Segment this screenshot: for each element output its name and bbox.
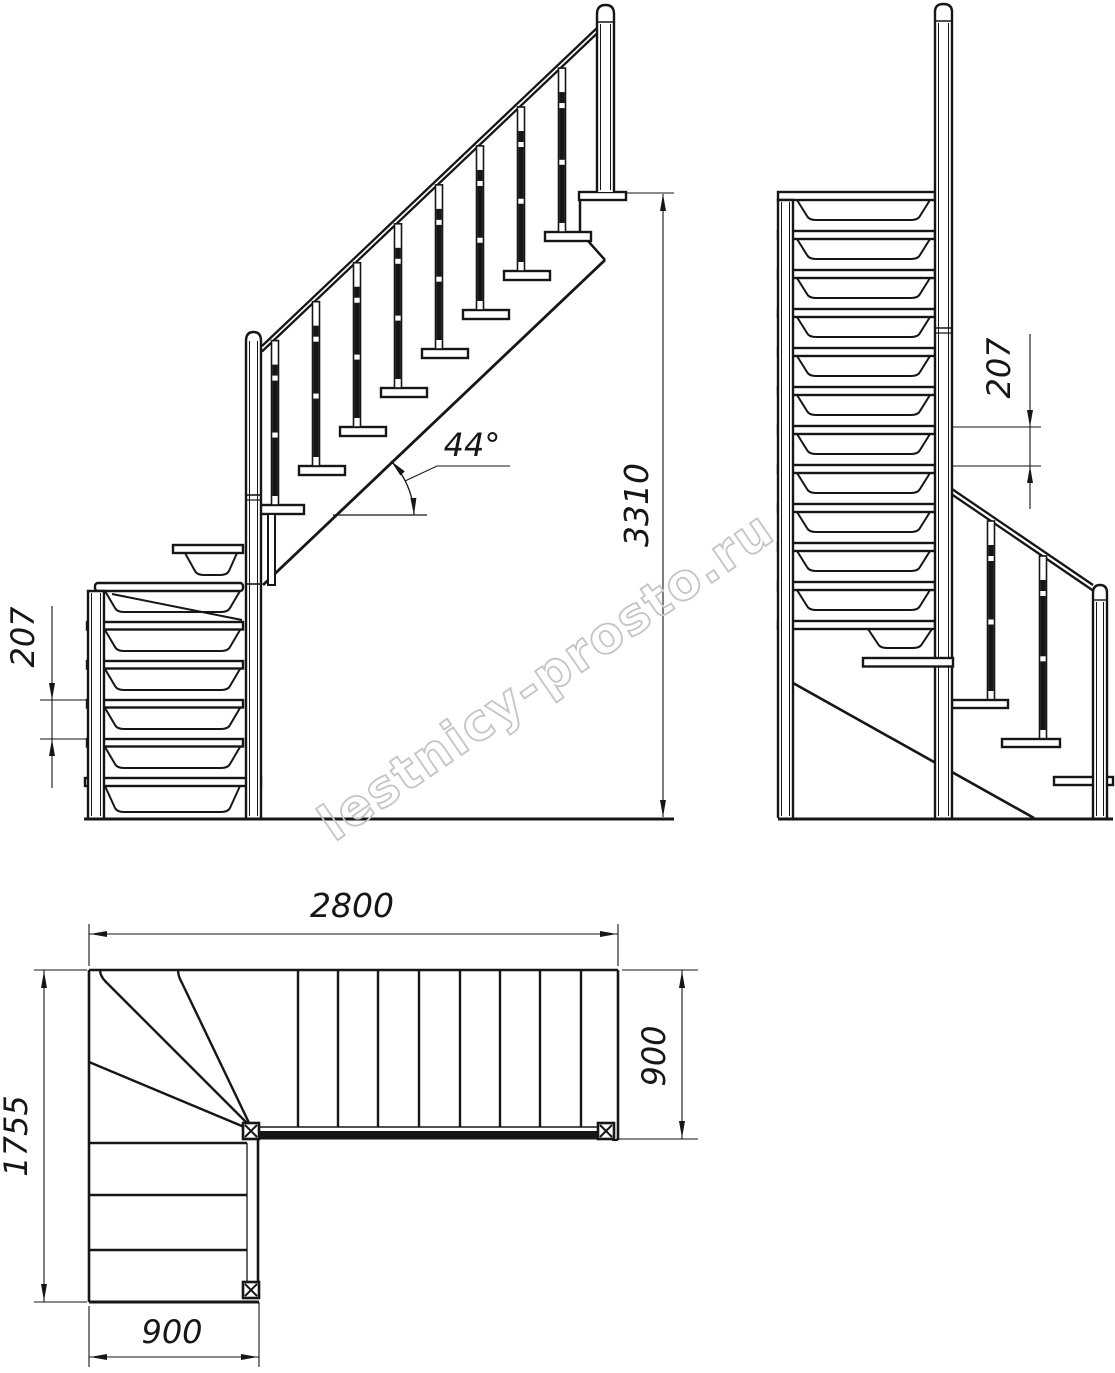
baluster	[559, 68, 566, 232]
tread	[463, 310, 509, 319]
tread	[778, 504, 935, 512]
lower-handrail-top-line	[952, 489, 1093, 585]
baluster-detail	[395, 321, 401, 379]
arrowhead	[410, 498, 417, 515]
tread-tray	[105, 747, 240, 768]
baluster-detail	[559, 92, 565, 103]
dim-riser-height-side: 207	[4, 606, 88, 788]
top-landing-tread	[579, 192, 626, 200]
tread	[381, 388, 427, 397]
arrowhead	[679, 971, 685, 988]
baluster-detail	[1040, 661, 1046, 730]
tread-tray	[105, 786, 240, 812]
tread	[778, 465, 935, 473]
handrail-top-line	[262, 27, 598, 346]
winder-tray-top	[185, 553, 237, 575]
baluster	[272, 341, 279, 505]
tread	[87, 622, 243, 630]
total-height-label: 3310	[617, 463, 656, 547]
baluster	[1040, 556, 1047, 739]
baluster-detail	[354, 303, 360, 355]
baluster	[354, 263, 361, 427]
arrowhead	[600, 931, 617, 937]
tread	[545, 232, 591, 241]
tread-tray	[797, 278, 930, 298]
angle-arc	[391, 461, 414, 515]
slope-angle-label: 44°	[444, 426, 501, 464]
tread	[95, 583, 243, 591]
baluster	[477, 146, 484, 310]
baluster-detail	[477, 186, 483, 238]
lower-tread-1	[952, 700, 1008, 708]
arrowhead	[90, 931, 107, 937]
baluster-detail	[313, 326, 319, 337]
newel-collar-tread	[863, 658, 953, 667]
tread	[778, 192, 935, 200]
tall-newel-post	[935, 4, 952, 818]
tread	[258, 505, 304, 514]
flight-width-label: 900	[635, 1025, 673, 1086]
center-newel-post	[246, 332, 261, 818]
plan-stringer-bar	[259, 1131, 598, 1140]
arrowhead	[241, 1354, 258, 1360]
baluster-detail	[518, 131, 524, 142]
upper-flight-balusters	[272, 68, 566, 505]
plan-newel-corner	[243, 1123, 259, 1139]
baluster-detail	[395, 248, 401, 259]
dim-total-height: 3310	[617, 193, 674, 817]
short-newel-post	[1093, 585, 1107, 818]
tread-tray	[797, 317, 930, 337]
tread	[778, 270, 935, 278]
baluster-detail	[436, 225, 442, 277]
front-elevation-view: 207	[778, 4, 1113, 819]
baluster-detail	[1040, 580, 1046, 591]
top-newel-post	[597, 5, 614, 192]
baluster-detail	[436, 282, 442, 340]
tread-tray	[797, 551, 930, 571]
tread-tray	[105, 708, 240, 729]
baluster-detail	[272, 365, 278, 376]
stack-left-post-front	[778, 200, 793, 818]
technical-drawing: 207 44° 3310	[0, 0, 1115, 1373]
baluster-detail	[272, 381, 278, 433]
step-support-post	[268, 514, 275, 585]
plan-newel-right	[598, 1123, 614, 1139]
arrowhead	[660, 194, 666, 211]
front-step-stack	[778, 192, 935, 648]
tread	[778, 582, 935, 590]
tread	[778, 309, 935, 317]
arrowhead	[41, 1284, 47, 1301]
winder-step-stack	[85, 583, 261, 812]
baluster	[988, 521, 995, 700]
total-run-label: 2800	[310, 886, 394, 925]
baluster	[436, 185, 443, 349]
tread-tray	[797, 356, 930, 376]
baluster-detail	[988, 561, 994, 620]
lower-flight-width-label: 900	[141, 1313, 202, 1351]
riser-height-label: 207	[4, 606, 42, 668]
tread	[504, 271, 550, 280]
drawing-sheet: 207 44° 3310	[0, 0, 1115, 1373]
arrowhead	[41, 971, 47, 988]
baluster-detail	[559, 108, 565, 160]
tread-tray	[797, 512, 930, 532]
arrowhead	[90, 1354, 107, 1360]
plan-tread-lines	[298, 970, 581, 1127]
baluster-detail	[477, 170, 483, 181]
baluster	[313, 302, 320, 466]
baluster	[395, 224, 402, 388]
baluster-detail	[272, 438, 278, 496]
arrowhead	[49, 683, 55, 700]
landing-support	[580, 200, 605, 260]
baluster-detail	[988, 545, 994, 556]
tread	[778, 621, 935, 629]
tread-tray	[797, 434, 930, 454]
baluster-detail	[988, 625, 994, 692]
baluster-detail	[1040, 596, 1046, 656]
tread	[87, 661, 243, 669]
watermark-text: lestnicy-prosto.ru	[308, 500, 785, 853]
tread-tray	[105, 591, 240, 612]
tread	[778, 387, 935, 395]
tread	[87, 739, 243, 747]
tread	[778, 543, 935, 551]
leader-line	[405, 466, 510, 481]
baluster	[518, 107, 525, 271]
winder-line-1	[100, 970, 251, 1127]
dim-riser-height-front: 207	[952, 334, 1041, 509]
arrowhead	[1027, 466, 1033, 483]
lower-handrail-bottom-line	[952, 495, 1093, 591]
winder-small-tread	[173, 545, 243, 553]
dim-angle: 44°	[333, 426, 510, 515]
tread	[85, 778, 261, 786]
arrowhead	[660, 800, 666, 817]
tread	[340, 427, 386, 436]
baluster-detail	[354, 360, 360, 418]
baluster-detail	[313, 342, 319, 394]
baluster-detail	[518, 147, 524, 199]
tread	[87, 700, 243, 708]
baluster-detail	[477, 243, 483, 301]
tread	[778, 231, 935, 239]
tread	[778, 348, 935, 356]
tread-tray	[797, 200, 930, 220]
plan-newel-bottom	[243, 1282, 259, 1298]
tread-tray	[105, 630, 240, 651]
lower-tread-2	[1002, 739, 1060, 747]
riser-height-label: 207	[980, 337, 1018, 399]
baluster-detail	[518, 204, 524, 262]
arrowhead	[679, 1121, 685, 1138]
total-depth-label: 1755	[0, 1095, 35, 1176]
tread-tray	[105, 669, 240, 690]
arrowhead	[49, 739, 55, 756]
dim-total-run: 2800	[89, 886, 618, 966]
tread	[299, 466, 345, 475]
stack-left-post	[88, 591, 104, 818]
plan-view: 2800 900 1755 900	[0, 886, 698, 1367]
side-elevation-view: 207 44° 3310	[4, 5, 674, 819]
dim-total-depth: 1755	[0, 970, 87, 1302]
tread-tray	[797, 590, 930, 610]
dim-lower-flight-width: 900	[89, 1302, 259, 1367]
baluster-detail	[313, 399, 319, 457]
baluster-detail	[395, 264, 401, 316]
tread-tray	[797, 473, 930, 493]
arrowhead	[1027, 410, 1033, 427]
tread-tray	[797, 395, 930, 415]
baluster-detail	[436, 209, 442, 220]
tread-tray	[868, 629, 932, 648]
dim-flight-width: 900	[616, 970, 698, 1139]
tread	[778, 426, 935, 434]
tread-tray	[797, 239, 930, 259]
tread	[422, 349, 468, 358]
baluster-detail	[559, 165, 565, 223]
baluster-detail	[354, 287, 360, 298]
